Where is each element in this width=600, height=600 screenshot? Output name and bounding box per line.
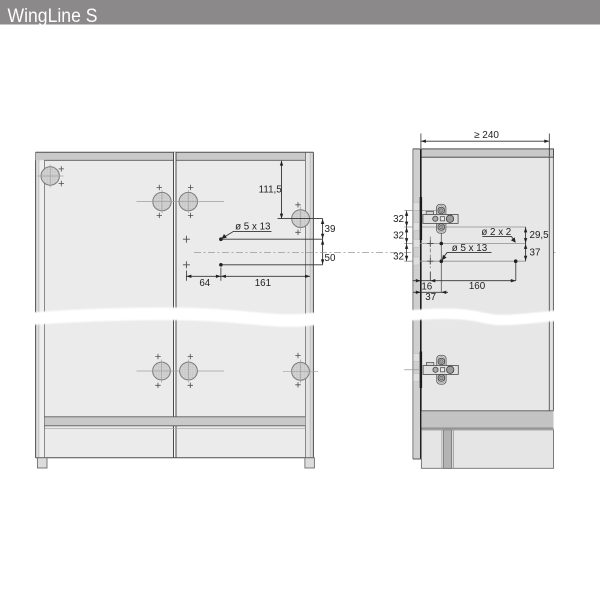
svg-text:32: 32 — [393, 214, 404, 225]
svg-text:29,5: 29,5 — [530, 230, 550, 241]
svg-text:50: 50 — [325, 253, 336, 264]
svg-text:160: 160 — [469, 281, 486, 292]
svg-text:32: 32 — [393, 231, 404, 242]
svg-text:WingLine S: WingLine S — [8, 5, 98, 27]
svg-text:37: 37 — [530, 248, 541, 259]
svg-text:32: 32 — [393, 252, 404, 263]
svg-text:39: 39 — [325, 224, 336, 235]
svg-text:161: 161 — [255, 278, 271, 289]
svg-text:≥ 240: ≥ 240 — [474, 130, 499, 141]
svg-text:64: 64 — [199, 278, 210, 289]
svg-text:37: 37 — [425, 292, 436, 303]
svg-text:111,5: 111,5 — [259, 184, 283, 195]
